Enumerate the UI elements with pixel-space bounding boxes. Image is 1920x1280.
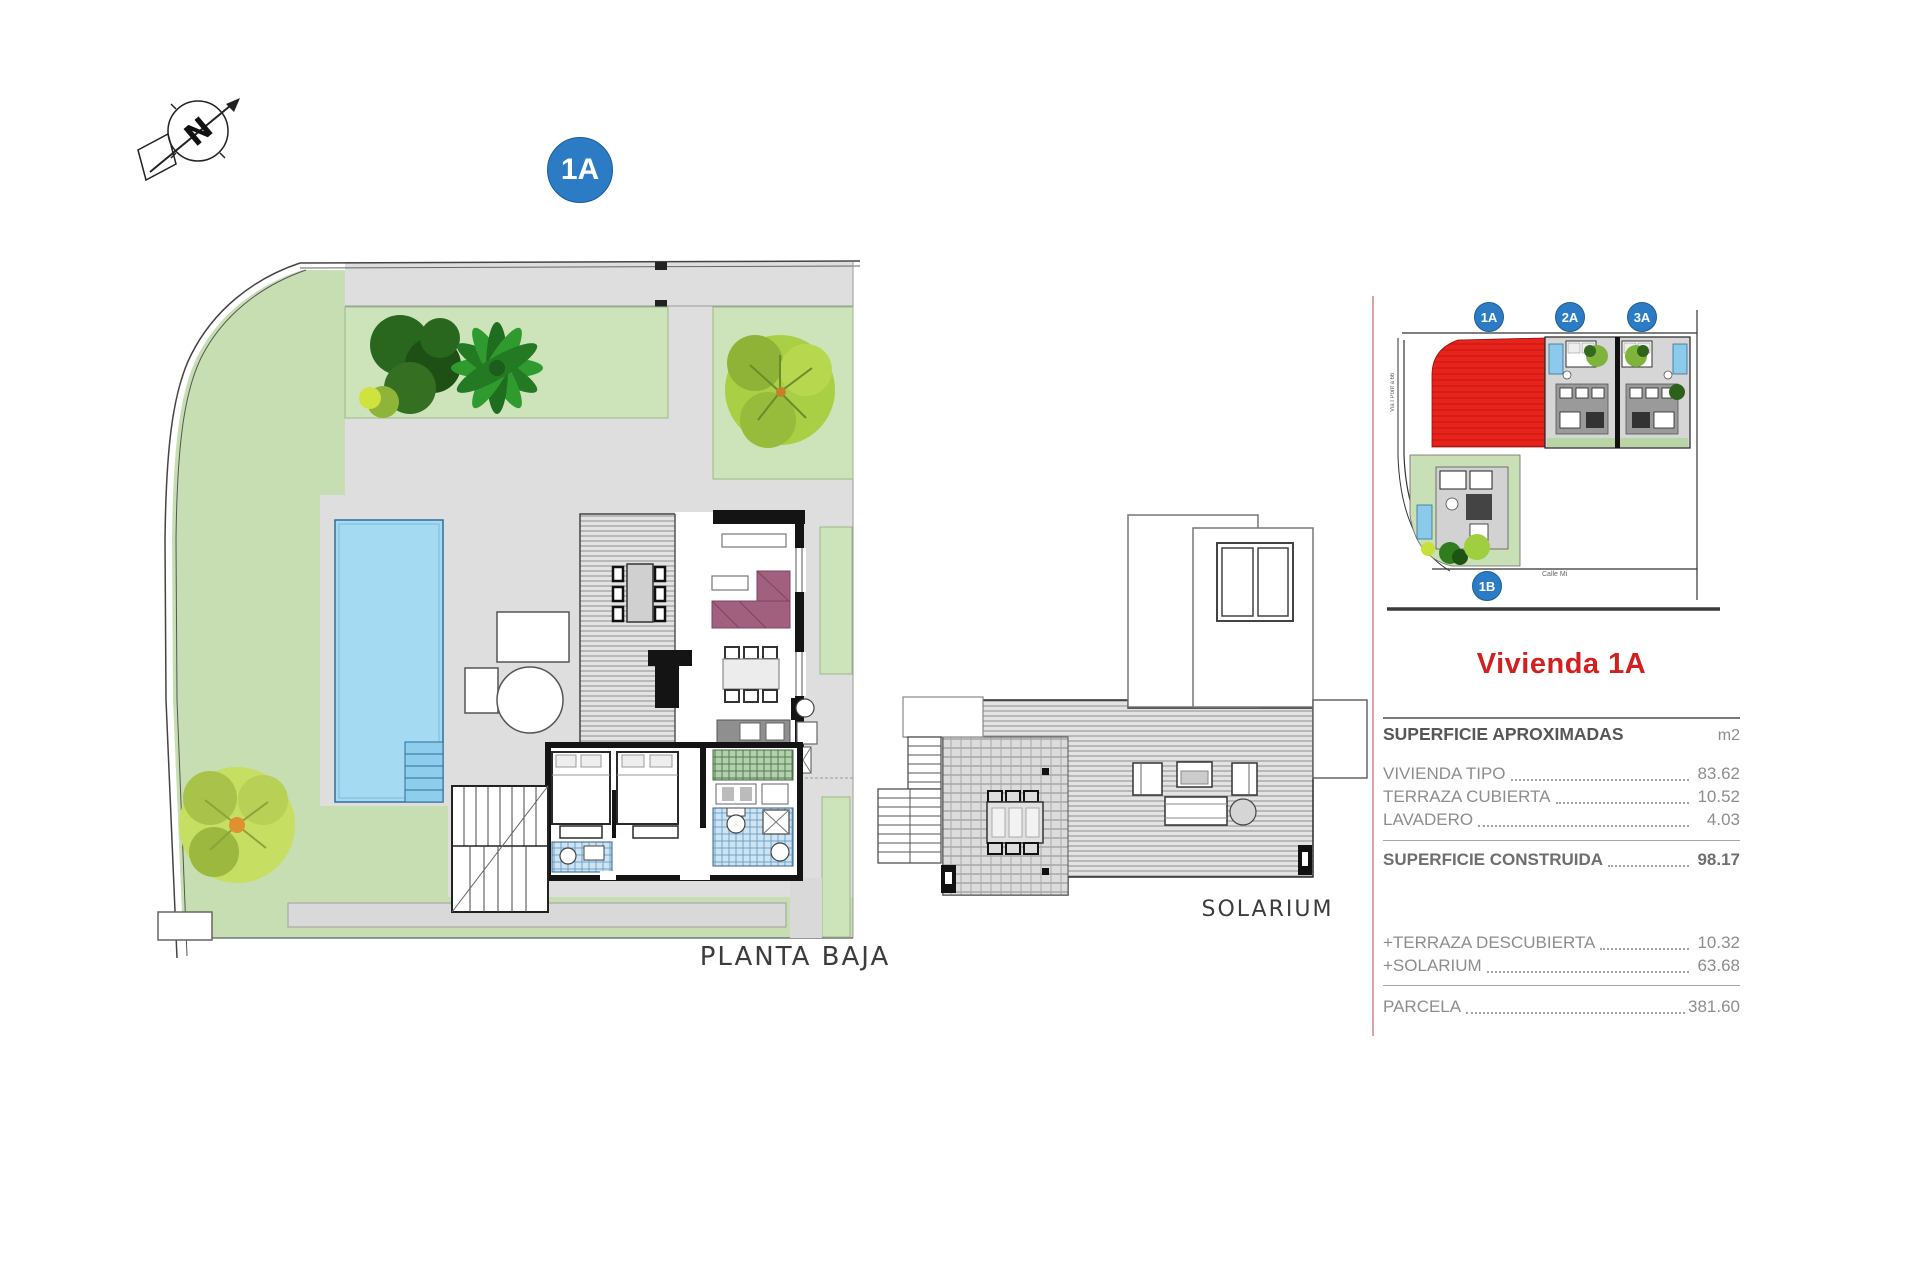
minimap-badge-1a: 1A bbox=[1474, 302, 1504, 332]
row-label: +TERRAZA DESCUBIERTA bbox=[1383, 931, 1595, 954]
minimap-badge-2a: 2A bbox=[1555, 302, 1585, 332]
table-row: TERRAZA CUBIERTA 10.52 bbox=[1383, 785, 1740, 808]
solarium-dining-set bbox=[987, 791, 1043, 854]
floor-plan-sheet: N bbox=[0, 0, 1920, 1280]
row-label: LAVADERO bbox=[1383, 808, 1473, 831]
solarium-label: SOLARIUM bbox=[1180, 897, 1355, 922]
laundry-area bbox=[713, 750, 793, 780]
dot-leader bbox=[1511, 779, 1689, 781]
table-rule bbox=[1383, 840, 1740, 841]
table-row: LAVADERO 4.03 bbox=[1383, 808, 1740, 831]
row-label: SUPERFICIE CONSTRUIDA bbox=[1383, 848, 1603, 871]
staircase bbox=[452, 786, 548, 912]
swimming-pool bbox=[335, 520, 443, 802]
panel-title: Vivienda 1A bbox=[1383, 648, 1740, 681]
bathroom-left bbox=[552, 842, 612, 872]
row-label: TERRAZA CUBIERTA bbox=[1383, 785, 1551, 808]
north-arrow-icon: N bbox=[138, 98, 240, 180]
row-value: 83.62 bbox=[1692, 762, 1740, 785]
minimap-plot-2a-3a bbox=[1545, 337, 1690, 448]
dot-leader bbox=[1556, 802, 1689, 804]
dot-leader bbox=[1487, 971, 1689, 973]
minimap-badge-1b: 1B bbox=[1472, 571, 1502, 601]
row-value: 98.17 bbox=[1692, 848, 1740, 871]
svg-text:N: N bbox=[178, 111, 220, 154]
table-row: PARCELA 381.60 bbox=[1383, 995, 1740, 1018]
table-header: SUPERFICIE APROXIMADAS m2 bbox=[1383, 724, 1740, 745]
panel-divider-line bbox=[1372, 296, 1374, 1036]
tree-bottom-left bbox=[179, 767, 295, 883]
dot-leader bbox=[1600, 948, 1689, 950]
deck-dining-table bbox=[613, 564, 665, 622]
row-label: VIVIENDA TIPO bbox=[1383, 762, 1506, 785]
bathroom-right bbox=[713, 808, 793, 866]
skylight bbox=[1217, 543, 1293, 621]
row-value: 63.68 bbox=[1692, 954, 1740, 977]
table-rule bbox=[1383, 717, 1740, 719]
solarium-plan bbox=[878, 515, 1367, 895]
row-value: 4.03 bbox=[1692, 808, 1740, 831]
table-row: +TERRAZA DESCUBIERTA 10.32 bbox=[1383, 931, 1740, 954]
row-value: 10.52 bbox=[1692, 785, 1740, 808]
minimap-plot-1a-highlight bbox=[1432, 338, 1545, 447]
plan-drawing: N bbox=[0, 0, 1920, 1280]
house-plan bbox=[548, 510, 817, 880]
ground-floor-label: PLANTA BAJA bbox=[690, 942, 900, 972]
solarium-stairs bbox=[878, 737, 941, 863]
dining-set bbox=[723, 647, 779, 702]
minimap-street-label-bottom: Calle Mi bbox=[1542, 571, 1567, 578]
row-value: 10.32 bbox=[1692, 931, 1740, 954]
dot-leader bbox=[1608, 865, 1689, 867]
minimap-plot-1b bbox=[1410, 455, 1520, 566]
table-row: +SOLARIUM 63.68 bbox=[1383, 954, 1740, 977]
minimap-badge-3a: 3A bbox=[1627, 302, 1657, 332]
table-row: VIVIENDA TIPO 83.62 bbox=[1383, 762, 1740, 785]
table-header-label: SUPERFICIE APROXIMADAS bbox=[1383, 724, 1624, 745]
row-label: PARCELA bbox=[1383, 995, 1461, 1018]
surface-data-panel: Vivienda 1A SUPERFICIE APROXIMADAS m2 VI… bbox=[1383, 648, 1740, 1018]
dot-leader bbox=[1478, 825, 1689, 827]
table-header-unit: m2 bbox=[1718, 727, 1740, 745]
row-value: 381.60 bbox=[1688, 995, 1740, 1018]
minimap-street-label-left: Via I Pont a 66 bbox=[1390, 340, 1396, 412]
unit-badge-1a: 1A bbox=[547, 137, 613, 203]
row-label: +SOLARIUM bbox=[1383, 954, 1482, 977]
table-rule bbox=[1383, 985, 1740, 986]
dot-leader bbox=[1466, 1012, 1685, 1014]
location-minimap bbox=[1387, 310, 1720, 609]
ground-floor-plan bbox=[158, 261, 860, 958]
table-row-total: SUPERFICIE CONSTRUIDA 98.17 bbox=[1383, 848, 1740, 871]
